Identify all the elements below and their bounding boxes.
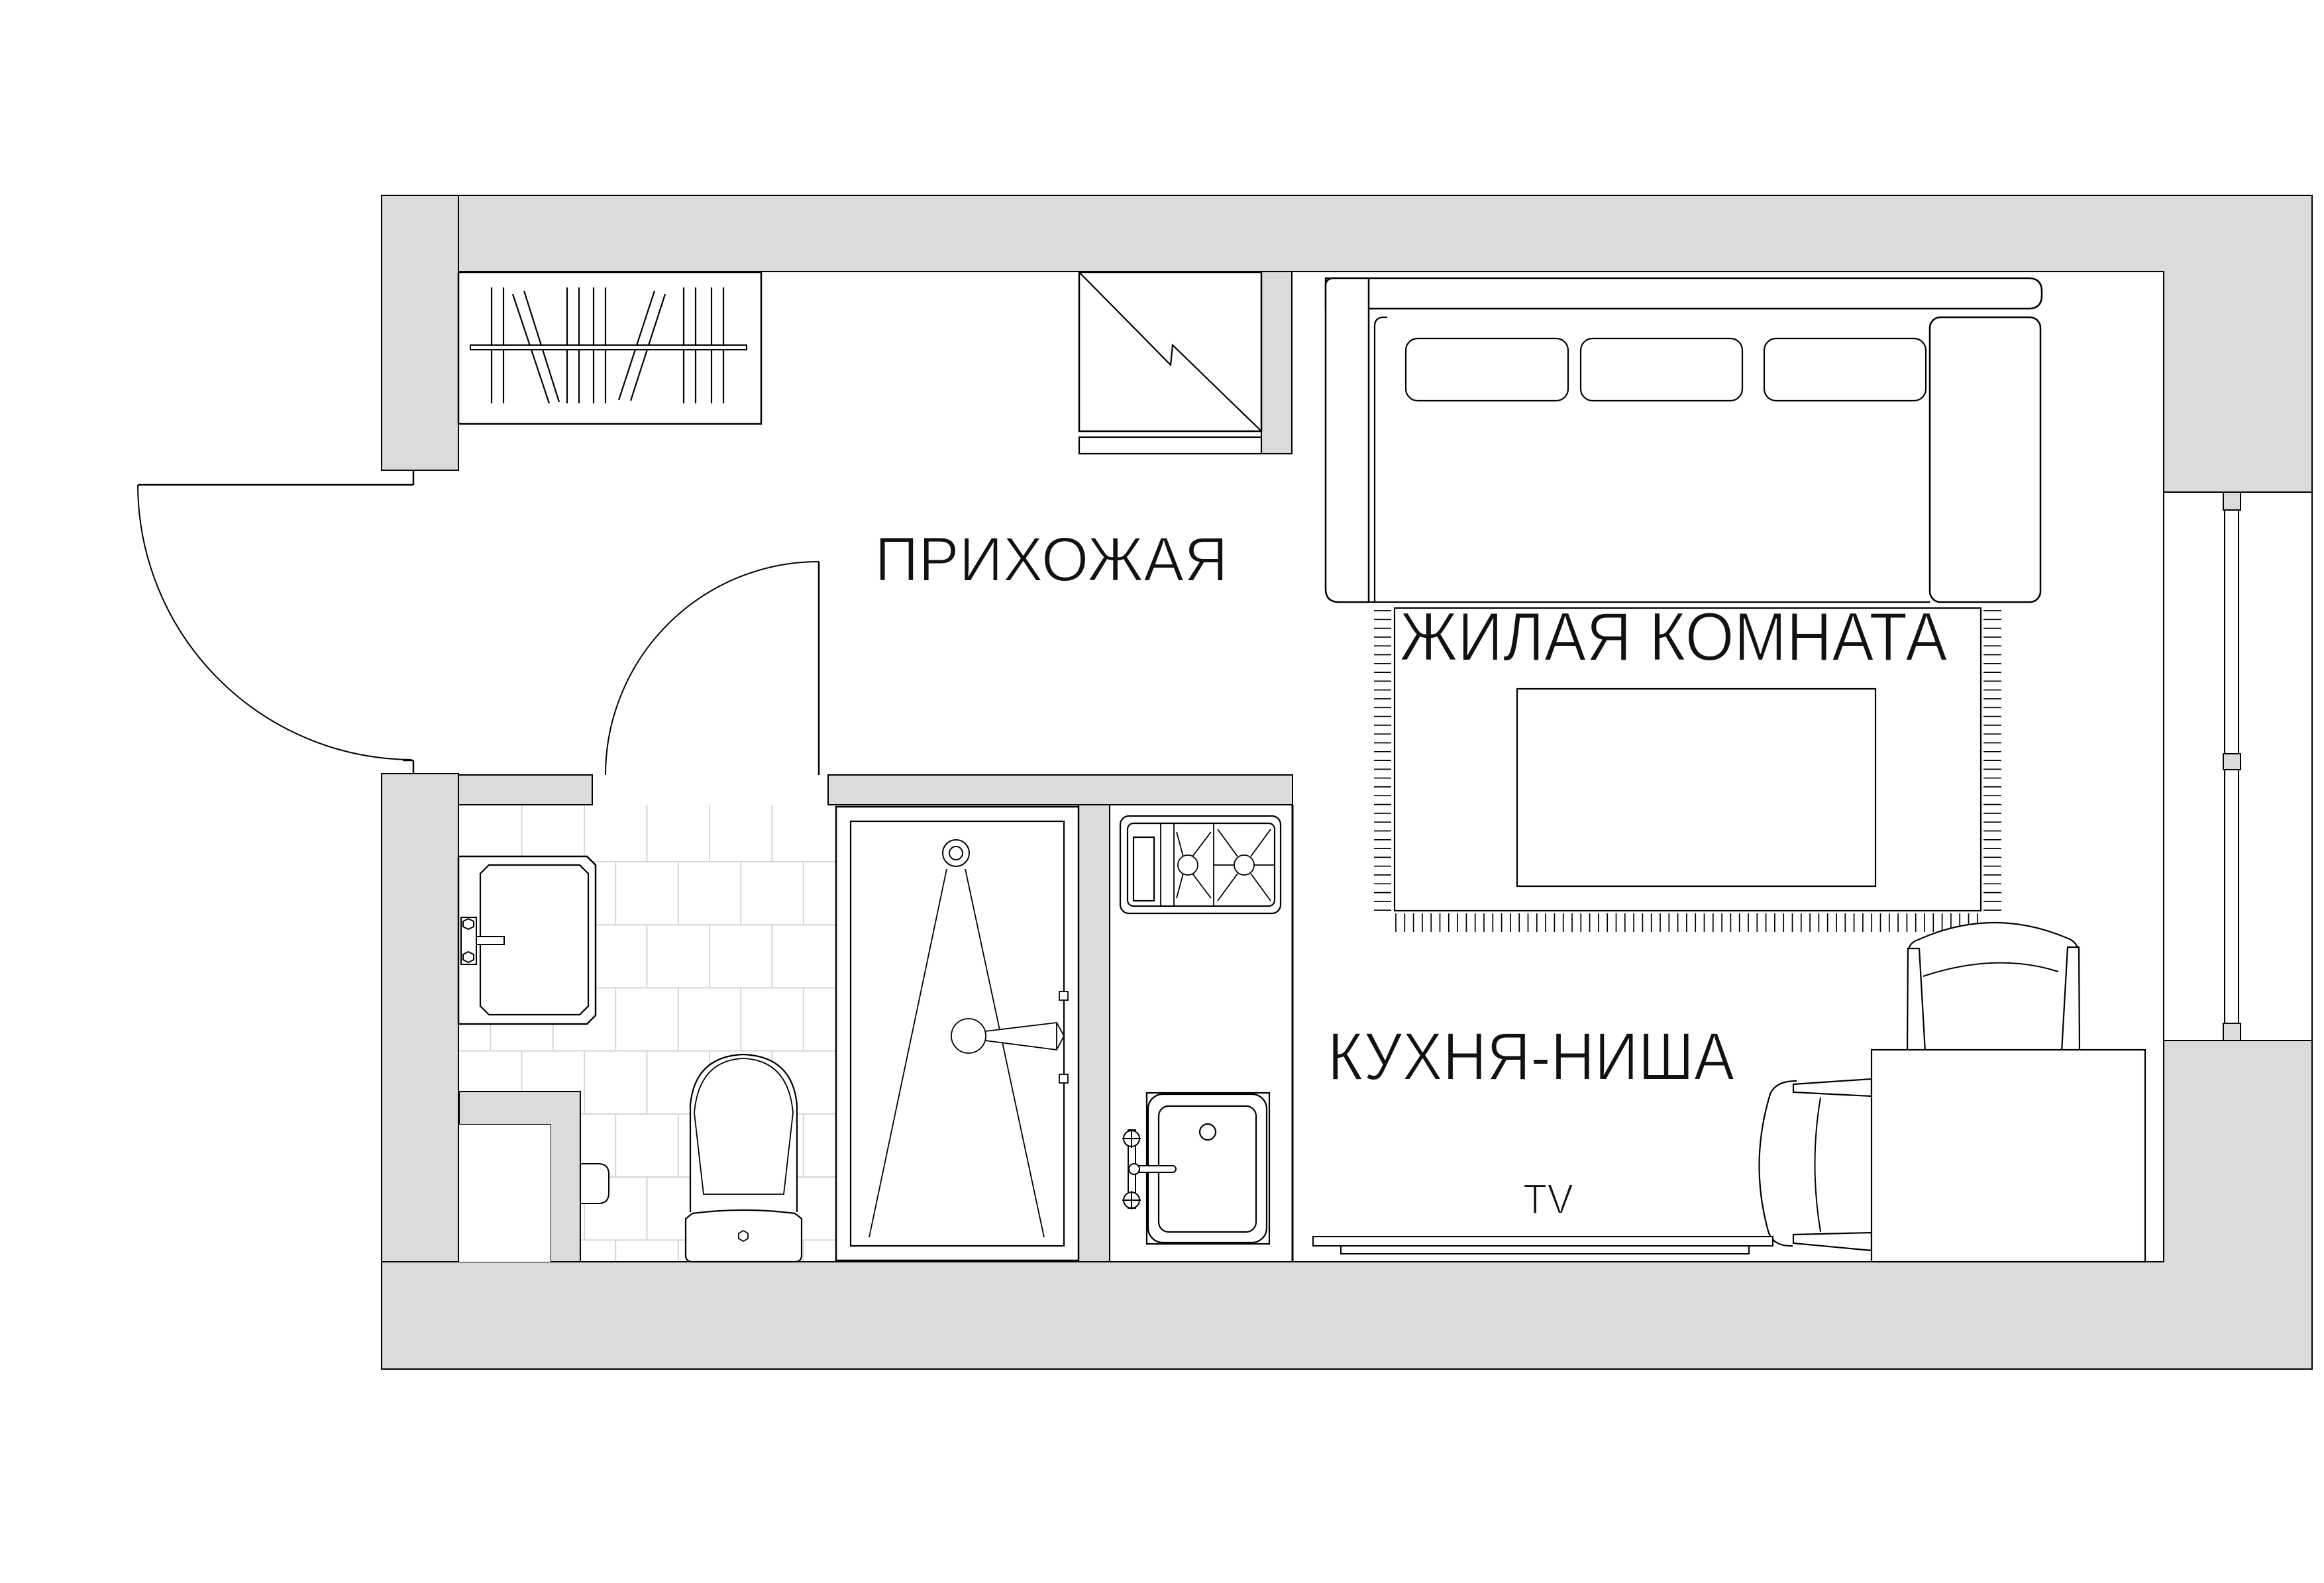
svg-text:КУХНЯ-НИША: КУХНЯ-НИША xyxy=(1328,1019,1734,1094)
svg-text:TV: TV xyxy=(1523,1175,1573,1223)
svg-text:ПРИХОЖАЯ: ПРИХОЖАЯ xyxy=(875,525,1228,595)
svg-text:ЖИЛАЯ КОМНАТА: ЖИЛАЯ КОМНАТА xyxy=(1400,599,1948,676)
